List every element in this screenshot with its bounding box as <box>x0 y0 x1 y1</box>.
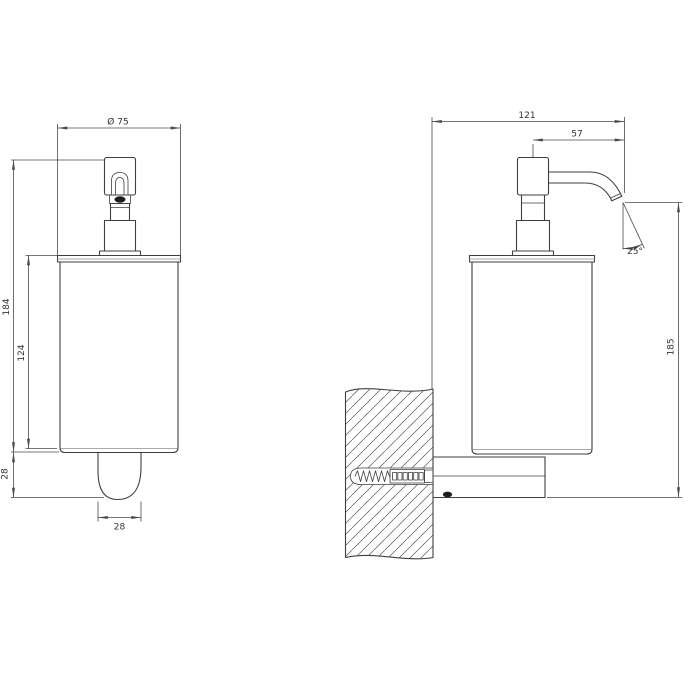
front-view <box>58 158 181 500</box>
dim-side-spout-reach-label: 57 <box>571 130 582 140</box>
pump-head-side <box>518 158 549 196</box>
spout-outer-edge <box>549 172 622 196</box>
dim-front-outlet-height-label: 28 <box>1 468 11 480</box>
drawing-sheet: Ø 75 184 124 28 28 <box>0 0 700 700</box>
front-view-dimensions: Ø 75 184 124 28 28 <box>1 117 181 533</box>
dim-side-overall-height-label: 185 <box>667 338 677 355</box>
technical-drawing-canvas: Ø 75 184 124 28 28 <box>0 0 700 700</box>
dim-front-diameter-label: Ø 75 <box>107 117 128 128</box>
bottle-body-side <box>472 262 592 454</box>
screw-anchor-assembly <box>351 468 434 485</box>
dim-side-spout-angle-label: 25° <box>627 247 643 257</box>
pump-stem-front <box>111 204 130 221</box>
set-screw <box>443 492 452 498</box>
pump-head-front <box>105 158 136 196</box>
side-view <box>346 158 622 559</box>
pump-stem-side <box>522 195 545 221</box>
dim-front-outlet-width-label: 28 <box>114 523 126 533</box>
dim-front-body-height-label: 124 <box>17 344 27 361</box>
spout-inner-edge <box>549 183 612 201</box>
spout-side <box>549 172 622 201</box>
spout-outlet-hole <box>115 196 126 202</box>
angle-leg-line <box>623 203 644 249</box>
dim-front-total-height-label: 184 <box>2 298 12 315</box>
pump-flange-side <box>513 251 554 256</box>
wall-plug-outline <box>351 468 434 485</box>
pump-collar-side <box>517 221 550 252</box>
bottom-nozzle-front <box>98 453 141 500</box>
bottle-body-front <box>60 262 178 453</box>
wall-bracket <box>433 457 545 498</box>
pump-flange-front <box>100 251 141 256</box>
dim-side-total-depth-label: 121 <box>518 111 535 121</box>
pump-collar-front <box>105 221 136 252</box>
